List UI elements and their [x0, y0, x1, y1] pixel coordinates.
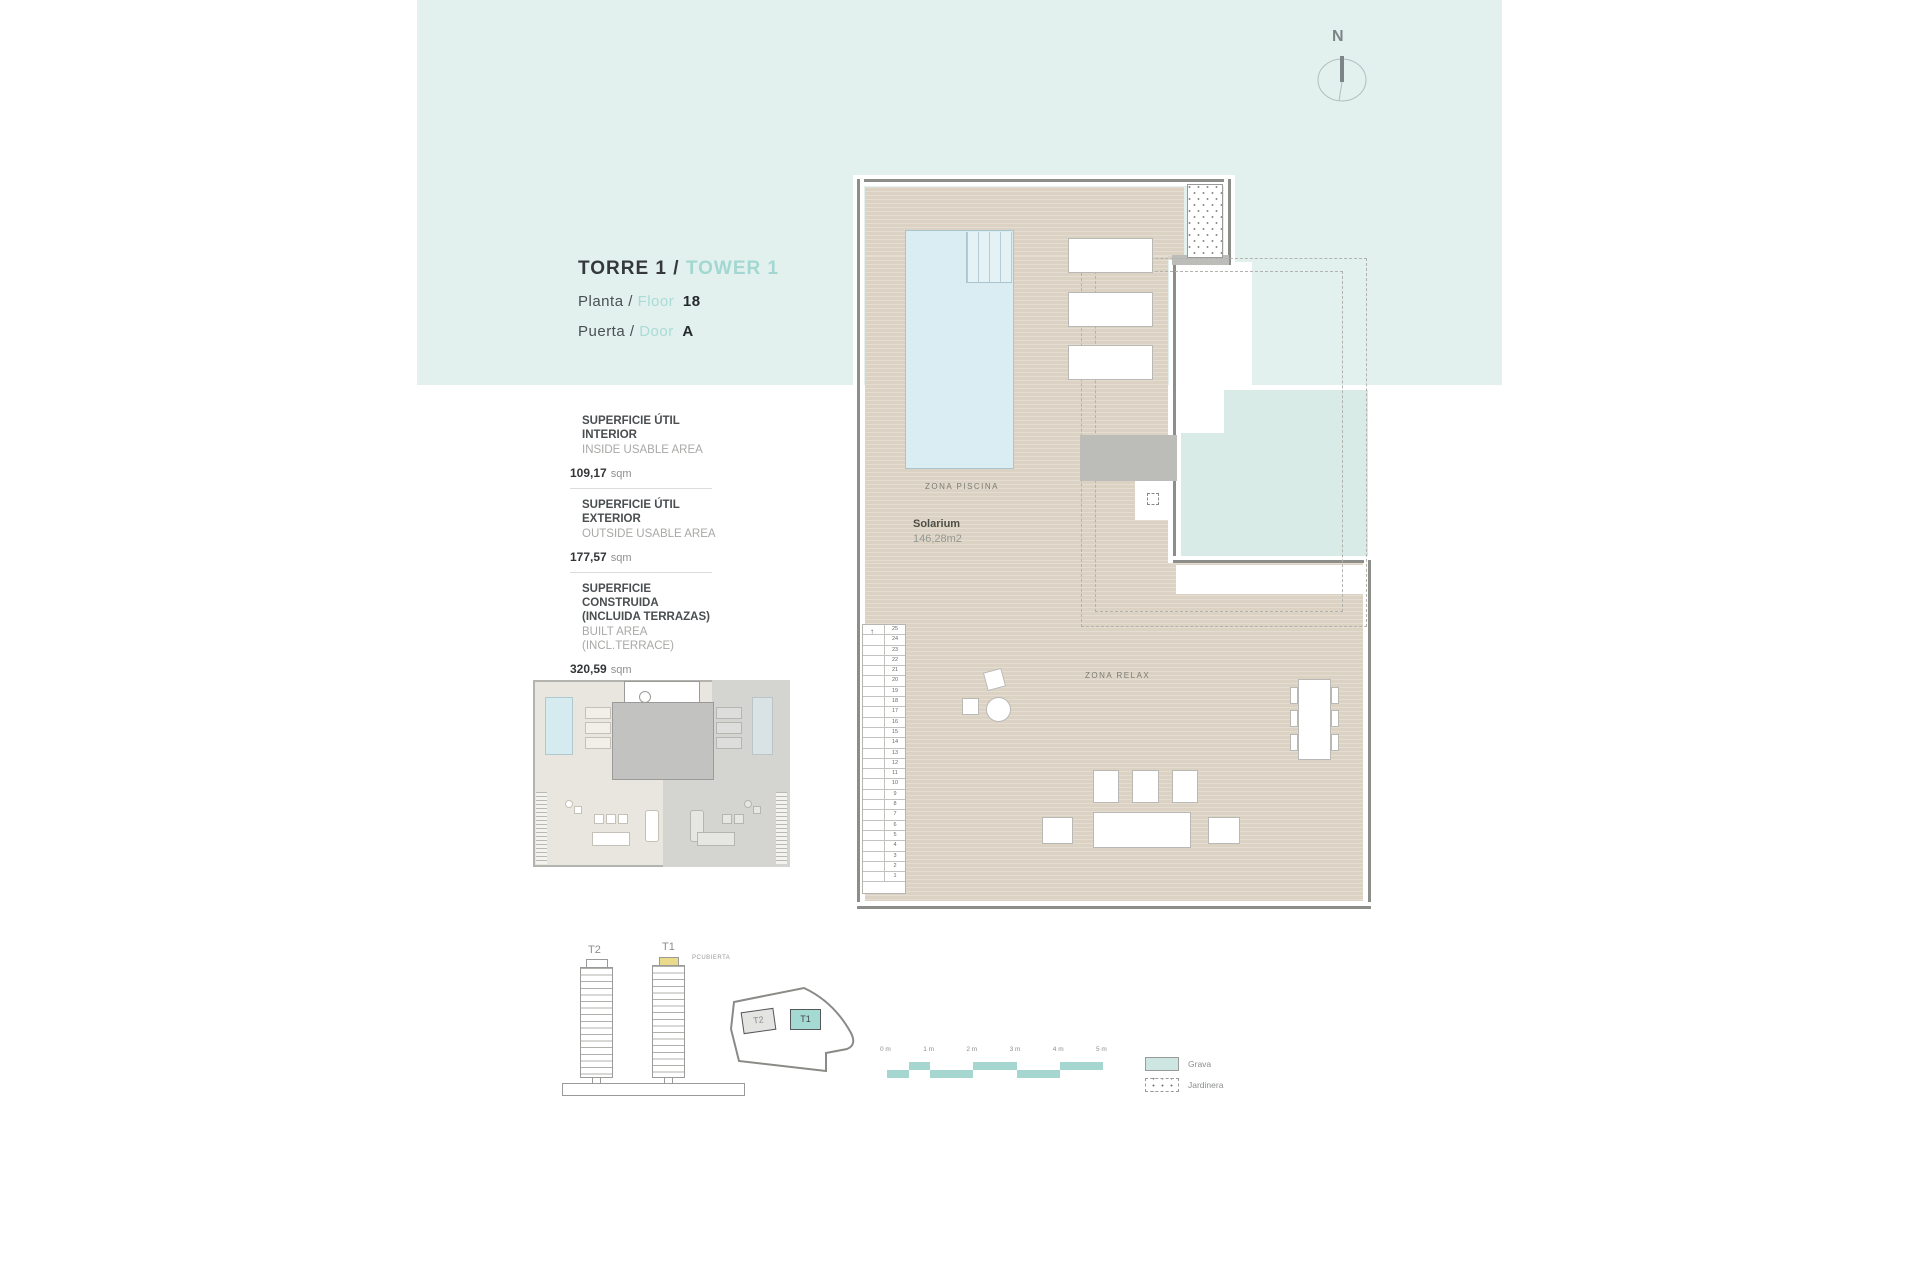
lounger-stub	[716, 737, 742, 749]
door-label-es: Puerta	[578, 323, 625, 340]
scale-bar: 0 m1 m2 m3 m4 m5 m	[887, 1046, 1117, 1081]
mini-chair	[594, 814, 604, 824]
title-sep: /	[673, 258, 679, 279]
door-label-en: Door	[639, 323, 674, 340]
lounger-stub	[585, 707, 611, 719]
stair-step: 24	[863, 635, 905, 645]
side-chair	[1208, 817, 1240, 844]
title-tower: TOWER 1	[686, 258, 779, 279]
stair-step: 5	[863, 831, 905, 841]
lounger-stub	[585, 722, 611, 734]
plan-border-bottom	[857, 906, 1371, 909]
area-label-en: OUTSIDE USABLE AREA	[582, 527, 730, 541]
area-value: 109,17sqm	[570, 466, 730, 480]
roof-floor-label: PCUBIERTA	[692, 955, 730, 961]
staircase: 2524232221201918171615141312111098765432…	[862, 624, 906, 894]
stair-step: 3	[863, 852, 905, 862]
area-item-built: SUPERFICIE CONSTRUIDA (INCLUIDA TERRAZAS…	[570, 582, 730, 676]
stair-step: 11	[863, 769, 905, 779]
legend-label: Jardinera	[1188, 1080, 1223, 1090]
site-t2-block: T2	[741, 1008, 777, 1034]
pouf-square	[962, 698, 979, 715]
chair	[1290, 734, 1298, 751]
divider	[570, 572, 712, 573]
site-plan: T2 T1	[728, 983, 873, 1078]
stair-step: 14	[863, 738, 905, 748]
area-label-en: BUILT AREA (INCL.TERRACE)	[582, 625, 730, 653]
area-item-interior: SUPERFICIE ÚTIL INTERIOR INSIDE USABLE A…	[570, 414, 730, 480]
mini-pouf	[753, 806, 761, 814]
scale-segment	[1060, 1062, 1103, 1070]
jardinera-planter	[1187, 184, 1223, 258]
zona-piscina-label: ZONA PISCINA	[925, 482, 999, 491]
scale-label: 2 m	[966, 1046, 977, 1053]
stair-step: 13	[863, 749, 905, 759]
lounger-stub	[585, 737, 611, 749]
scale-segment	[973, 1062, 1016, 1070]
grava-swatch	[1145, 1057, 1179, 1071]
area-label-es: SUPERFICIE CONSTRUIDA	[582, 582, 730, 610]
t1-tower	[652, 965, 685, 1078]
mini-table	[592, 832, 630, 846]
sun-lounger	[1068, 345, 1153, 380]
area-value: 177,57sqm	[570, 550, 730, 564]
title-block: TORRE 1 / TOWER 1 Planta / Floor 18 Puer…	[578, 258, 878, 340]
solarium-area-label: 146,28m2	[913, 533, 962, 545]
solarium-label: Solarium	[913, 518, 960, 530]
stair-step: 15	[863, 728, 905, 738]
lounger-stub	[716, 707, 742, 719]
compass-north-label: N	[1332, 28, 1344, 46]
jardinera-swatch	[1145, 1078, 1179, 1092]
access-core	[1080, 435, 1177, 481]
stair-strip	[776, 792, 787, 864]
chair	[1290, 710, 1298, 727]
legend: Grava Jardinera	[1145, 1055, 1265, 1097]
floorplan-sheet: N TORRE 1 / TOWER 1 Planta / Floor 18 Pu…	[0, 0, 1920, 1280]
stair-step: 1	[863, 872, 905, 882]
chair	[1331, 734, 1339, 751]
mini-pouf	[574, 806, 582, 814]
plan-border-top	[857, 179, 1231, 182]
zona-relax-label: ZONA RELAX	[1085, 671, 1150, 680]
page-title: TORRE 1 / TOWER 1	[578, 258, 878, 280]
floor-sep: /	[628, 293, 633, 310]
divider	[570, 488, 712, 489]
mini-chair	[734, 814, 744, 824]
mini-chair	[722, 814, 732, 824]
sun-lounger	[1068, 292, 1153, 327]
pool-steps	[966, 232, 1012, 283]
roof-void	[624, 681, 700, 704]
area-measurements: SUPERFICIE ÚTIL INTERIOR INSIDE USABLE A…	[570, 414, 730, 676]
stair-strip	[536, 792, 547, 864]
legend-item-grava: Grava	[1145, 1055, 1265, 1076]
compass-graphic	[1316, 28, 1376, 108]
legend-label: Grava	[1188, 1059, 1211, 1069]
scale-segment	[1017, 1070, 1060, 1078]
stair-step: 8	[863, 800, 905, 810]
north-compass-icon: N	[1316, 28, 1376, 108]
side-chair	[1042, 817, 1073, 844]
stair-step: 17	[863, 707, 905, 717]
stair-step: 4	[863, 841, 905, 851]
scale-label: 1 m	[923, 1046, 934, 1053]
mini-pouf	[744, 800, 752, 808]
chair	[1331, 687, 1339, 704]
lounger-stub	[716, 722, 742, 734]
dining-table	[1298, 679, 1331, 760]
armchair	[1132, 770, 1159, 803]
area-label-es: SUPERFICIE ÚTIL EXTERIOR	[582, 498, 730, 526]
stair-step: 20	[863, 676, 905, 686]
sun-lounger	[1068, 238, 1153, 273]
chair	[1331, 710, 1339, 727]
mini-dining-table	[645, 810, 659, 842]
stair-direction-arrow: ↑	[870, 627, 874, 636]
mini-pouf	[565, 800, 573, 808]
area-value: 320,59sqm	[570, 662, 730, 676]
stair-step: 12	[863, 759, 905, 769]
chair	[1290, 687, 1298, 704]
stair-step: 16	[863, 718, 905, 728]
stair-step: 2	[863, 862, 905, 872]
stair-step: 22	[863, 656, 905, 666]
plan-border-right-upper	[1228, 179, 1231, 265]
scale-label: 3 m	[1010, 1046, 1021, 1053]
armchair	[1093, 770, 1119, 803]
area-label-es: SUPERFICIE ÚTIL INTERIOR	[582, 414, 730, 442]
stair-step: 9	[863, 790, 905, 800]
stair-step: 6	[863, 821, 905, 831]
stair-step: 7	[863, 810, 905, 820]
stair-step: 21	[863, 666, 905, 676]
area-label-es2: (INCLUIDA TERRAZAS)	[582, 610, 730, 624]
stair-step: 19	[863, 687, 905, 697]
pool-left	[545, 697, 573, 755]
scale-label: 4 m	[1053, 1046, 1064, 1053]
mini-chair	[606, 814, 616, 824]
plan-border-left	[857, 179, 860, 909]
scale-segment	[930, 1070, 973, 1078]
scale-segment	[887, 1070, 909, 1078]
floor-label-en: Floor	[638, 293, 675, 310]
stair-step: 18	[863, 697, 905, 707]
overview-keyplan	[533, 680, 788, 867]
scale-label: 0 m	[880, 1046, 891, 1053]
stair-step: 23	[863, 646, 905, 656]
door-row: Puerta / Door A	[578, 323, 878, 340]
area-item-exterior: SUPERFICIE ÚTIL EXTERIOR OUTSIDE USABLE …	[570, 498, 730, 564]
drain-icon	[1147, 493, 1159, 505]
shower-pad	[1135, 481, 1173, 520]
podium-base	[562, 1083, 745, 1096]
floor-label-es: Planta	[578, 293, 624, 310]
armchair	[1172, 770, 1198, 803]
pouf-round	[986, 697, 1011, 722]
plan-border-right-lower	[1368, 560, 1371, 909]
floor-row: Planta / Floor 18	[578, 293, 878, 310]
floor-value: 18	[683, 293, 701, 310]
area-label-en: INSIDE USABLE AREA	[582, 443, 730, 457]
door-value: A	[682, 323, 693, 340]
t2-elevation-label: T2	[588, 944, 601, 956]
t2-tower	[580, 967, 613, 1078]
t1-elevation-label: T1	[662, 941, 675, 953]
mini-table	[697, 832, 735, 846]
scale-segment	[909, 1062, 931, 1070]
stair-step: 10	[863, 779, 905, 789]
title-torre: TORRE 1	[578, 258, 667, 279]
coffee-table	[1093, 812, 1191, 848]
mini-chair	[618, 814, 628, 824]
core-block	[612, 702, 714, 780]
pool-right	[752, 697, 773, 755]
site-t1-block: T1	[790, 1009, 821, 1030]
legend-item-jardinera: Jardinera	[1145, 1076, 1265, 1097]
door-sep: /	[630, 323, 635, 340]
scale-label: 5 m	[1096, 1046, 1107, 1053]
